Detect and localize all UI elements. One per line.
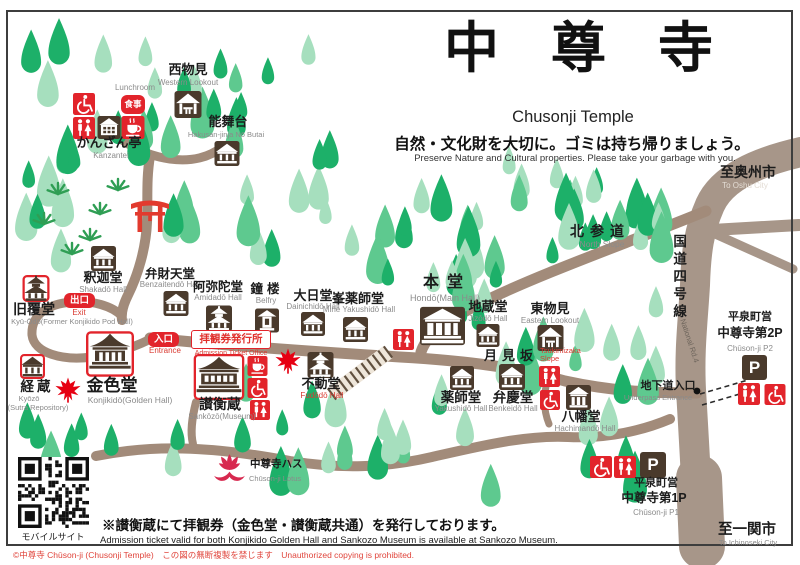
wheelchair-icon [540, 390, 560, 410]
mine-yakushido-label-en: Mine Yakushidō Hall [323, 306, 395, 315]
benkeido-label-jp: 弁慶堂 [493, 390, 534, 405]
bamboo-icon [108, 179, 129, 190]
lotus-label-en: Chūson-ji Lotus [249, 475, 301, 483]
to-oshu-label-en: To Oshu City [722, 182, 768, 191]
notice-jp: 自然・文化財を大切に。ゴミは持ち帰りましょう。 [394, 132, 750, 154]
hall-icon [476, 324, 500, 347]
chusonji-temple-map: 中尊寺 Chusonji Temple 自然・文化財を大切に。ゴミは持ち帰りまし… [0, 0, 800, 565]
konjikido-label-jp: 金色堂 [87, 376, 138, 395]
toilet-icon [539, 366, 560, 387]
kyu-odo-label-en: Kyū-Ōdō(Former Konjikido Pod Hall) [11, 318, 133, 326]
amidado-label-jp: 阿弥陀堂 [193, 280, 243, 294]
parking-icon: P [640, 452, 666, 478]
benzaitendo-label-en: Benzaitendō Hall [140, 281, 200, 290]
gatehouse-icon [564, 385, 593, 410]
p2-label-en: Chūson-ji P2 [727, 345, 773, 354]
western-lookout-label-jp: 西物見 [168, 63, 207, 78]
gate-icon [420, 305, 465, 347]
fudodo-label-en: Fudōdō Hall [300, 392, 343, 401]
benzaitendo-label-jp: 弁財天堂 [145, 267, 195, 281]
to-ichinoseki-label-jp: 至一関市 [718, 522, 776, 538]
amidado-label-en: Amidadō Hall [194, 294, 242, 303]
shakado-label-jp: 釈迦堂 [83, 271, 122, 286]
hachimando-label-en: Hachimandō Hall [555, 425, 616, 434]
wheelchair-icon [590, 456, 612, 478]
exit-badge: 出口 [64, 293, 95, 308]
belfry-label-en: Belfry [256, 297, 276, 306]
entrance-label-en: Entrance [149, 347, 181, 356]
kanzantei-path [122, 156, 150, 320]
hondo-label-jp: 本堂 [423, 274, 471, 292]
route4-road-south [699, 478, 702, 546]
yakushido-label-jp: 薬師堂 [441, 390, 482, 405]
nobutai-label-en: Hakusan-jinja Nō Butai [188, 131, 264, 139]
footer-notice-jp: ※讃衡蔵にて拝観券（金色堂・讃衡蔵共通）を発行しております。 [102, 514, 505, 534]
kyu-odo-label-jp: 旧覆堂 [13, 302, 55, 318]
shelter-icon [174, 91, 202, 118]
to-oshu-label-jp: 至奥州市 [720, 165, 776, 181]
hall-icon [300, 312, 326, 336]
underpass-label-jp: 地下道入口 [641, 380, 696, 392]
yakushido-label-en: Yakushidō Hall [435, 405, 488, 414]
hall-icon [91, 246, 116, 271]
museum-icon [193, 354, 245, 400]
sankozo-label-jp: 讃衡蔵 [199, 397, 241, 413]
p2-label-jp2: 中尊寺第2P [717, 326, 782, 340]
map-title-en: Chusonji Temple [512, 108, 634, 127]
kanzantei-label-jp: かんざん亭 [76, 136, 141, 151]
copyright-line: ©中尊寺 Chūson-ji (Chusonji Temple) この図の無断複… [13, 549, 414, 561]
footer-notice-en: Admission ticket valid for both Konjikid… [100, 535, 558, 546]
goldhall-icon [86, 331, 134, 377]
pagoda-icon [22, 275, 50, 302]
toilet-icon [737, 383, 761, 405]
jizodo-label-jp: 地蔵堂 [468, 300, 507, 315]
toilet-icon [614, 456, 636, 478]
p1-label-en: Chūson-ji P1 [633, 509, 679, 518]
sankozo-label-en: Sankōzō(Museum) [188, 413, 255, 422]
konjikido-label-en: Konjikidō(Golden Hall) [88, 396, 173, 406]
ticket-office-sign: 拝観券発行所 [191, 330, 271, 349]
hall-icon [213, 141, 241, 166]
p1-label-jp2: 中尊寺第1P [621, 491, 686, 505]
north-slope-label-jp: 北参道 [570, 224, 630, 240]
wheelchair-icon [73, 93, 95, 115]
parking-icon: P [742, 355, 767, 380]
underpass-label-en: Underpass Entrance [624, 394, 692, 402]
nobutai-label-jp: 能舞台 [208, 115, 247, 130]
lotus-icon [211, 450, 248, 487]
jizodo-label-en: Jizōdō Hall [468, 315, 507, 324]
maple-leaf-icon [55, 377, 80, 402]
coffee-icon [247, 356, 268, 376]
p2-label-jp: 平泉町営 [728, 311, 772, 323]
wheelchair-icon [764, 384, 786, 405]
hall-icon [448, 366, 476, 390]
pagoda-icon [206, 305, 232, 332]
hall-icon [496, 364, 528, 390]
entrance-badge: 入口 [148, 332, 179, 347]
fudodo-label-jp: 不動堂 [301, 377, 340, 392]
hall-icon [163, 291, 189, 316]
hachimando-label-jp: 八幡堂 [561, 410, 600, 425]
toilet-icon [393, 329, 414, 350]
hall-icon [342, 317, 369, 342]
notice-en: Preserve Nature and Cultural properties.… [414, 153, 736, 164]
route4-branch-east [712, 225, 799, 230]
belfry-label-jp: 鐘楼 [250, 282, 283, 296]
north-slope-label-en: North Slope [580, 240, 625, 250]
benkeido-label-en: Benkeidō Hall [488, 405, 537, 414]
p1-label-jp: 平泉町営 [634, 477, 678, 489]
tsukimizaka-label-jp: 月見坂 [484, 349, 538, 364]
meal-badge: 食事 [121, 95, 145, 114]
western-lookout-label-en: Western Lookout [158, 79, 218, 88]
kyozo-label-en2: (Sutra Repository) [8, 404, 69, 412]
lunchroom-label-en: Lunchroom [115, 84, 155, 93]
pagoda-icon [307, 352, 334, 378]
route4-branch-southeast [713, 233, 793, 269]
qr-code-icon [18, 457, 89, 528]
kyozo-label-jp: 経蔵 [21, 379, 54, 394]
wheelchair-icon [247, 378, 268, 398]
exit-label-en: Exit [72, 309, 85, 318]
museum-connector-path [192, 402, 196, 444]
hall-icon [18, 354, 47, 379]
bamboo-icon [90, 203, 111, 214]
route4-label-jp: 国道四号線 [671, 234, 686, 322]
mobile-label-jp: モバイルサイト [21, 532, 84, 542]
tsukimizaka-label-en: Tsukimizaka Slope [540, 347, 581, 364]
to-ichinoseki-label-en: To Ichinoseki City [719, 539, 777, 547]
lotus-label-jp: 中尊寺ハス [250, 459, 303, 471]
kanzantei-label-en: Kanzantei [93, 152, 129, 161]
eastern-lookout-label-jp: 東物見 [530, 302, 569, 317]
bamboo-icon [80, 229, 101, 240]
map-title-jp: 中尊寺 [444, 20, 765, 75]
